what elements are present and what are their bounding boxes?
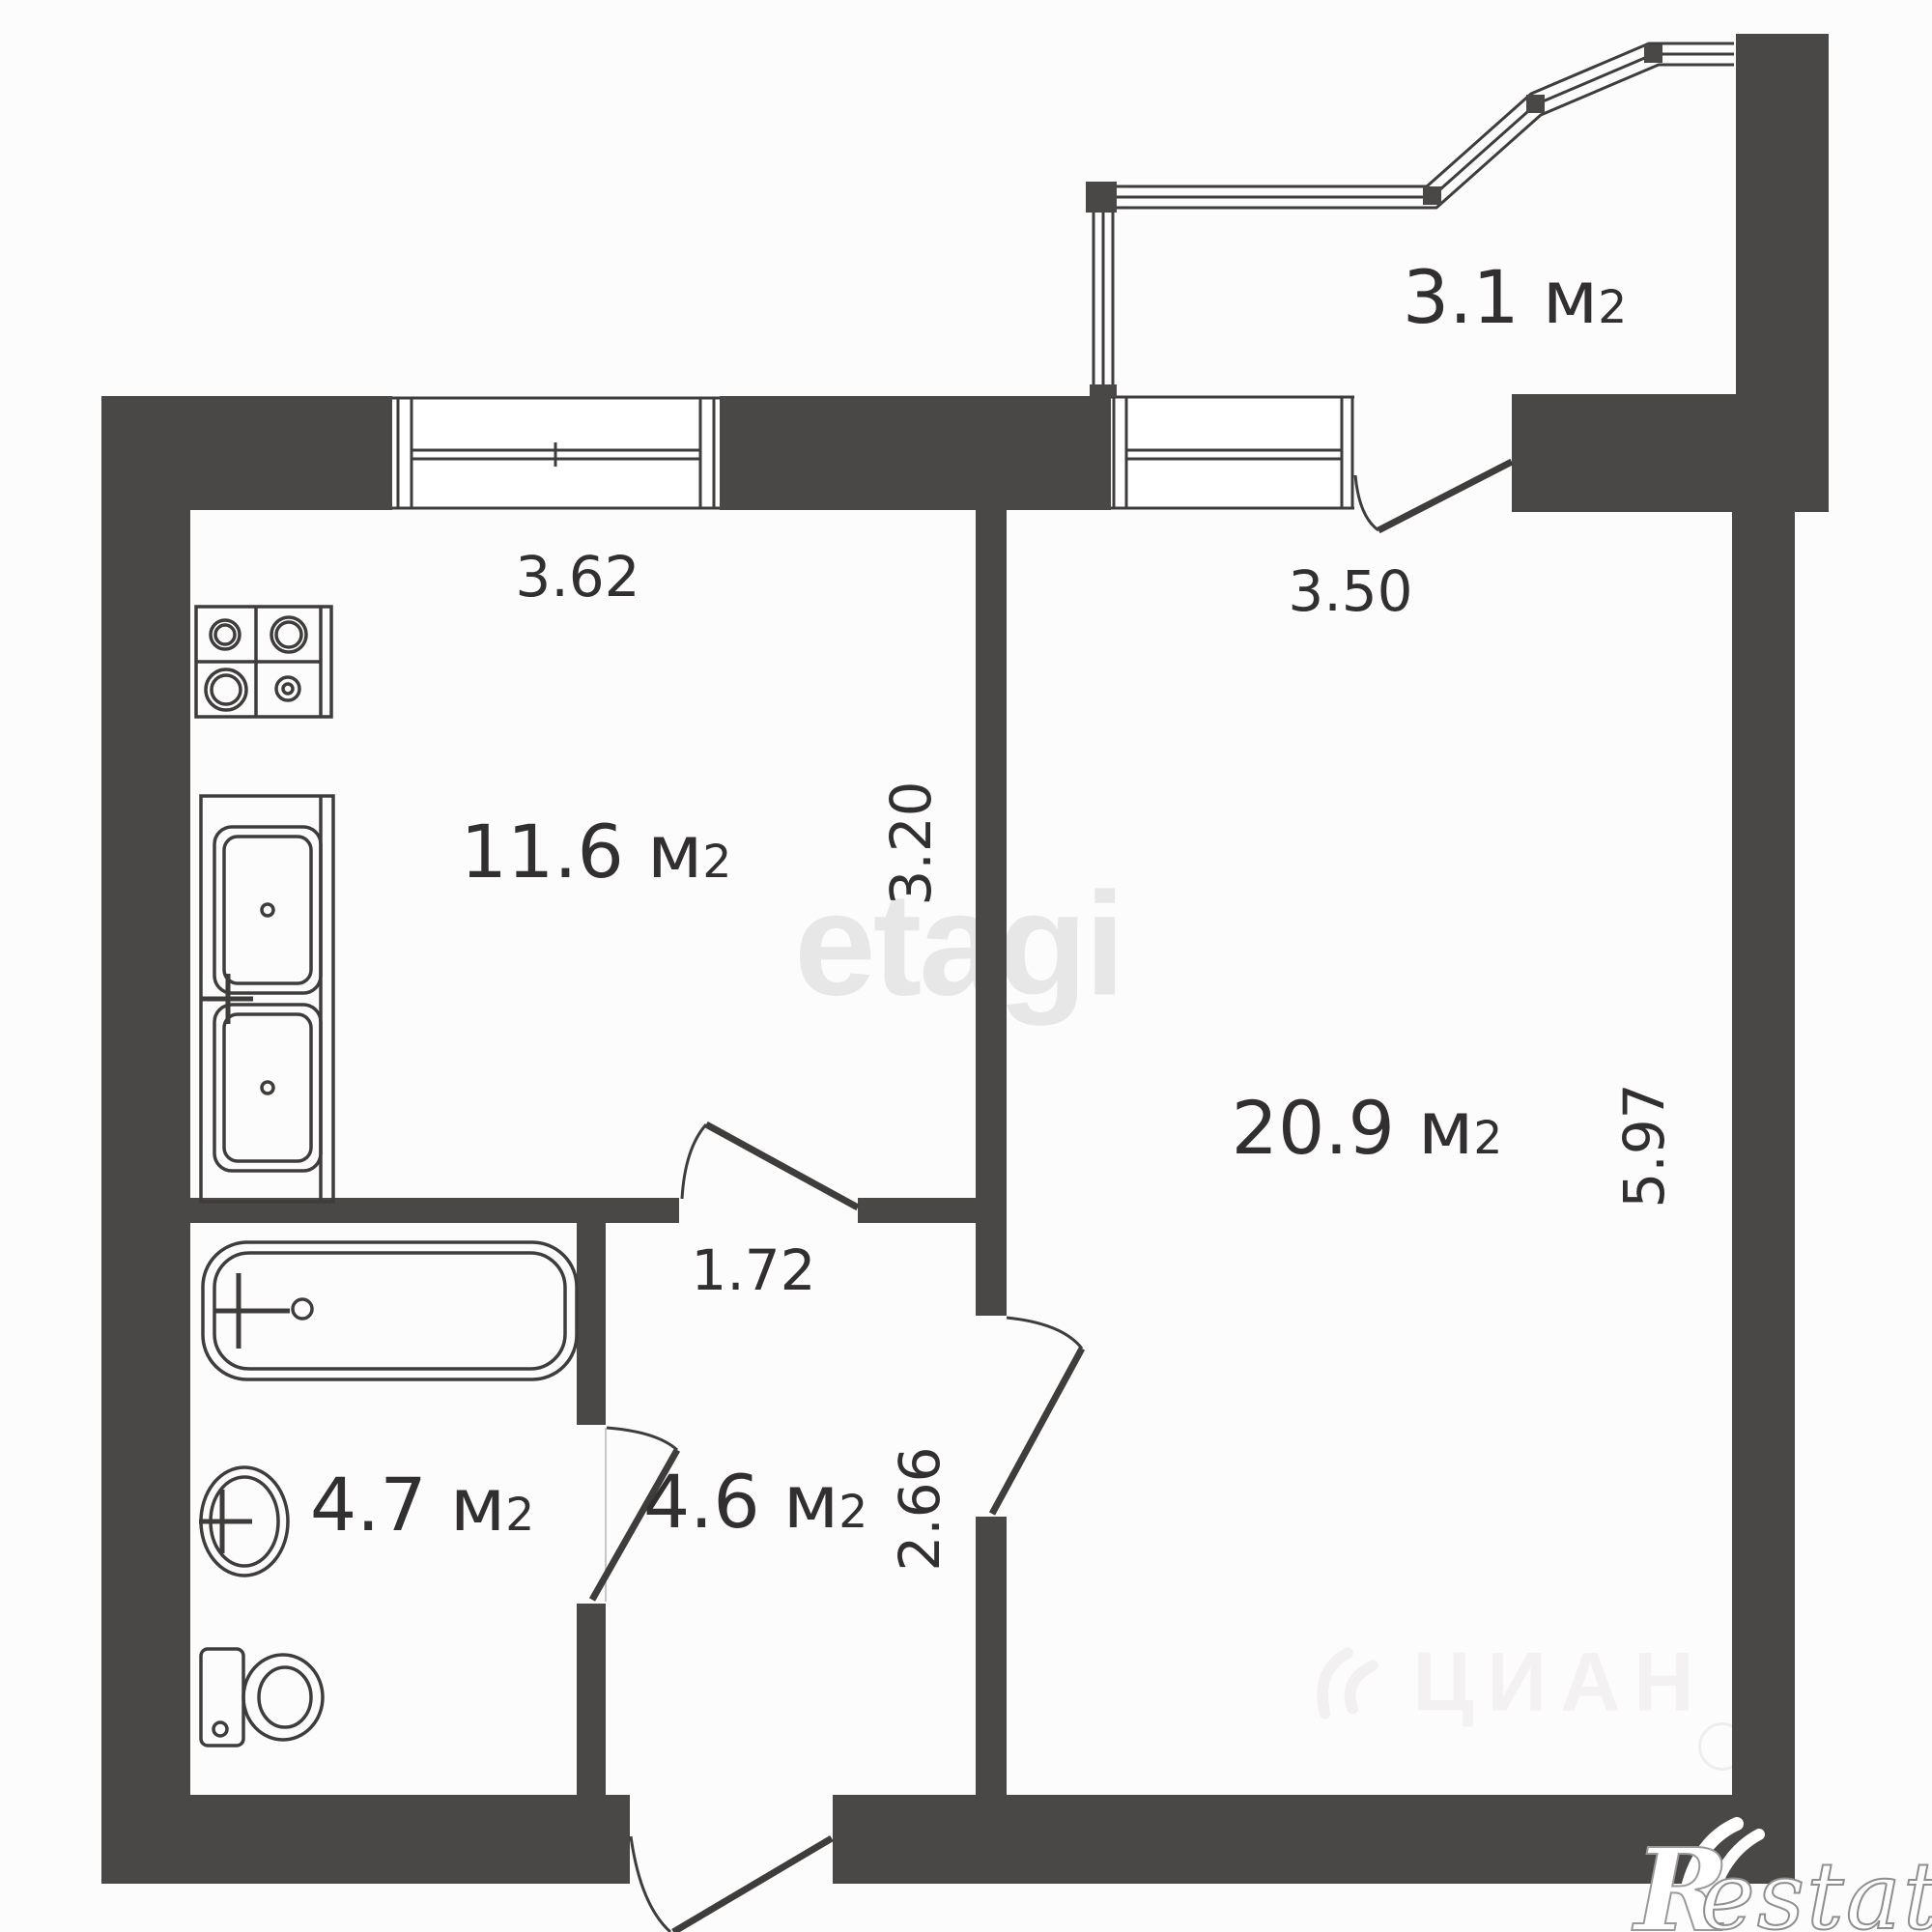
logo-restate-wordmark: estate <box>1700 1842 1932 1932</box>
floorplan-canvas: etagi ЦИАН <box>0 0 1932 1932</box>
logo-restate: R estate <box>0 0 1932 1932</box>
